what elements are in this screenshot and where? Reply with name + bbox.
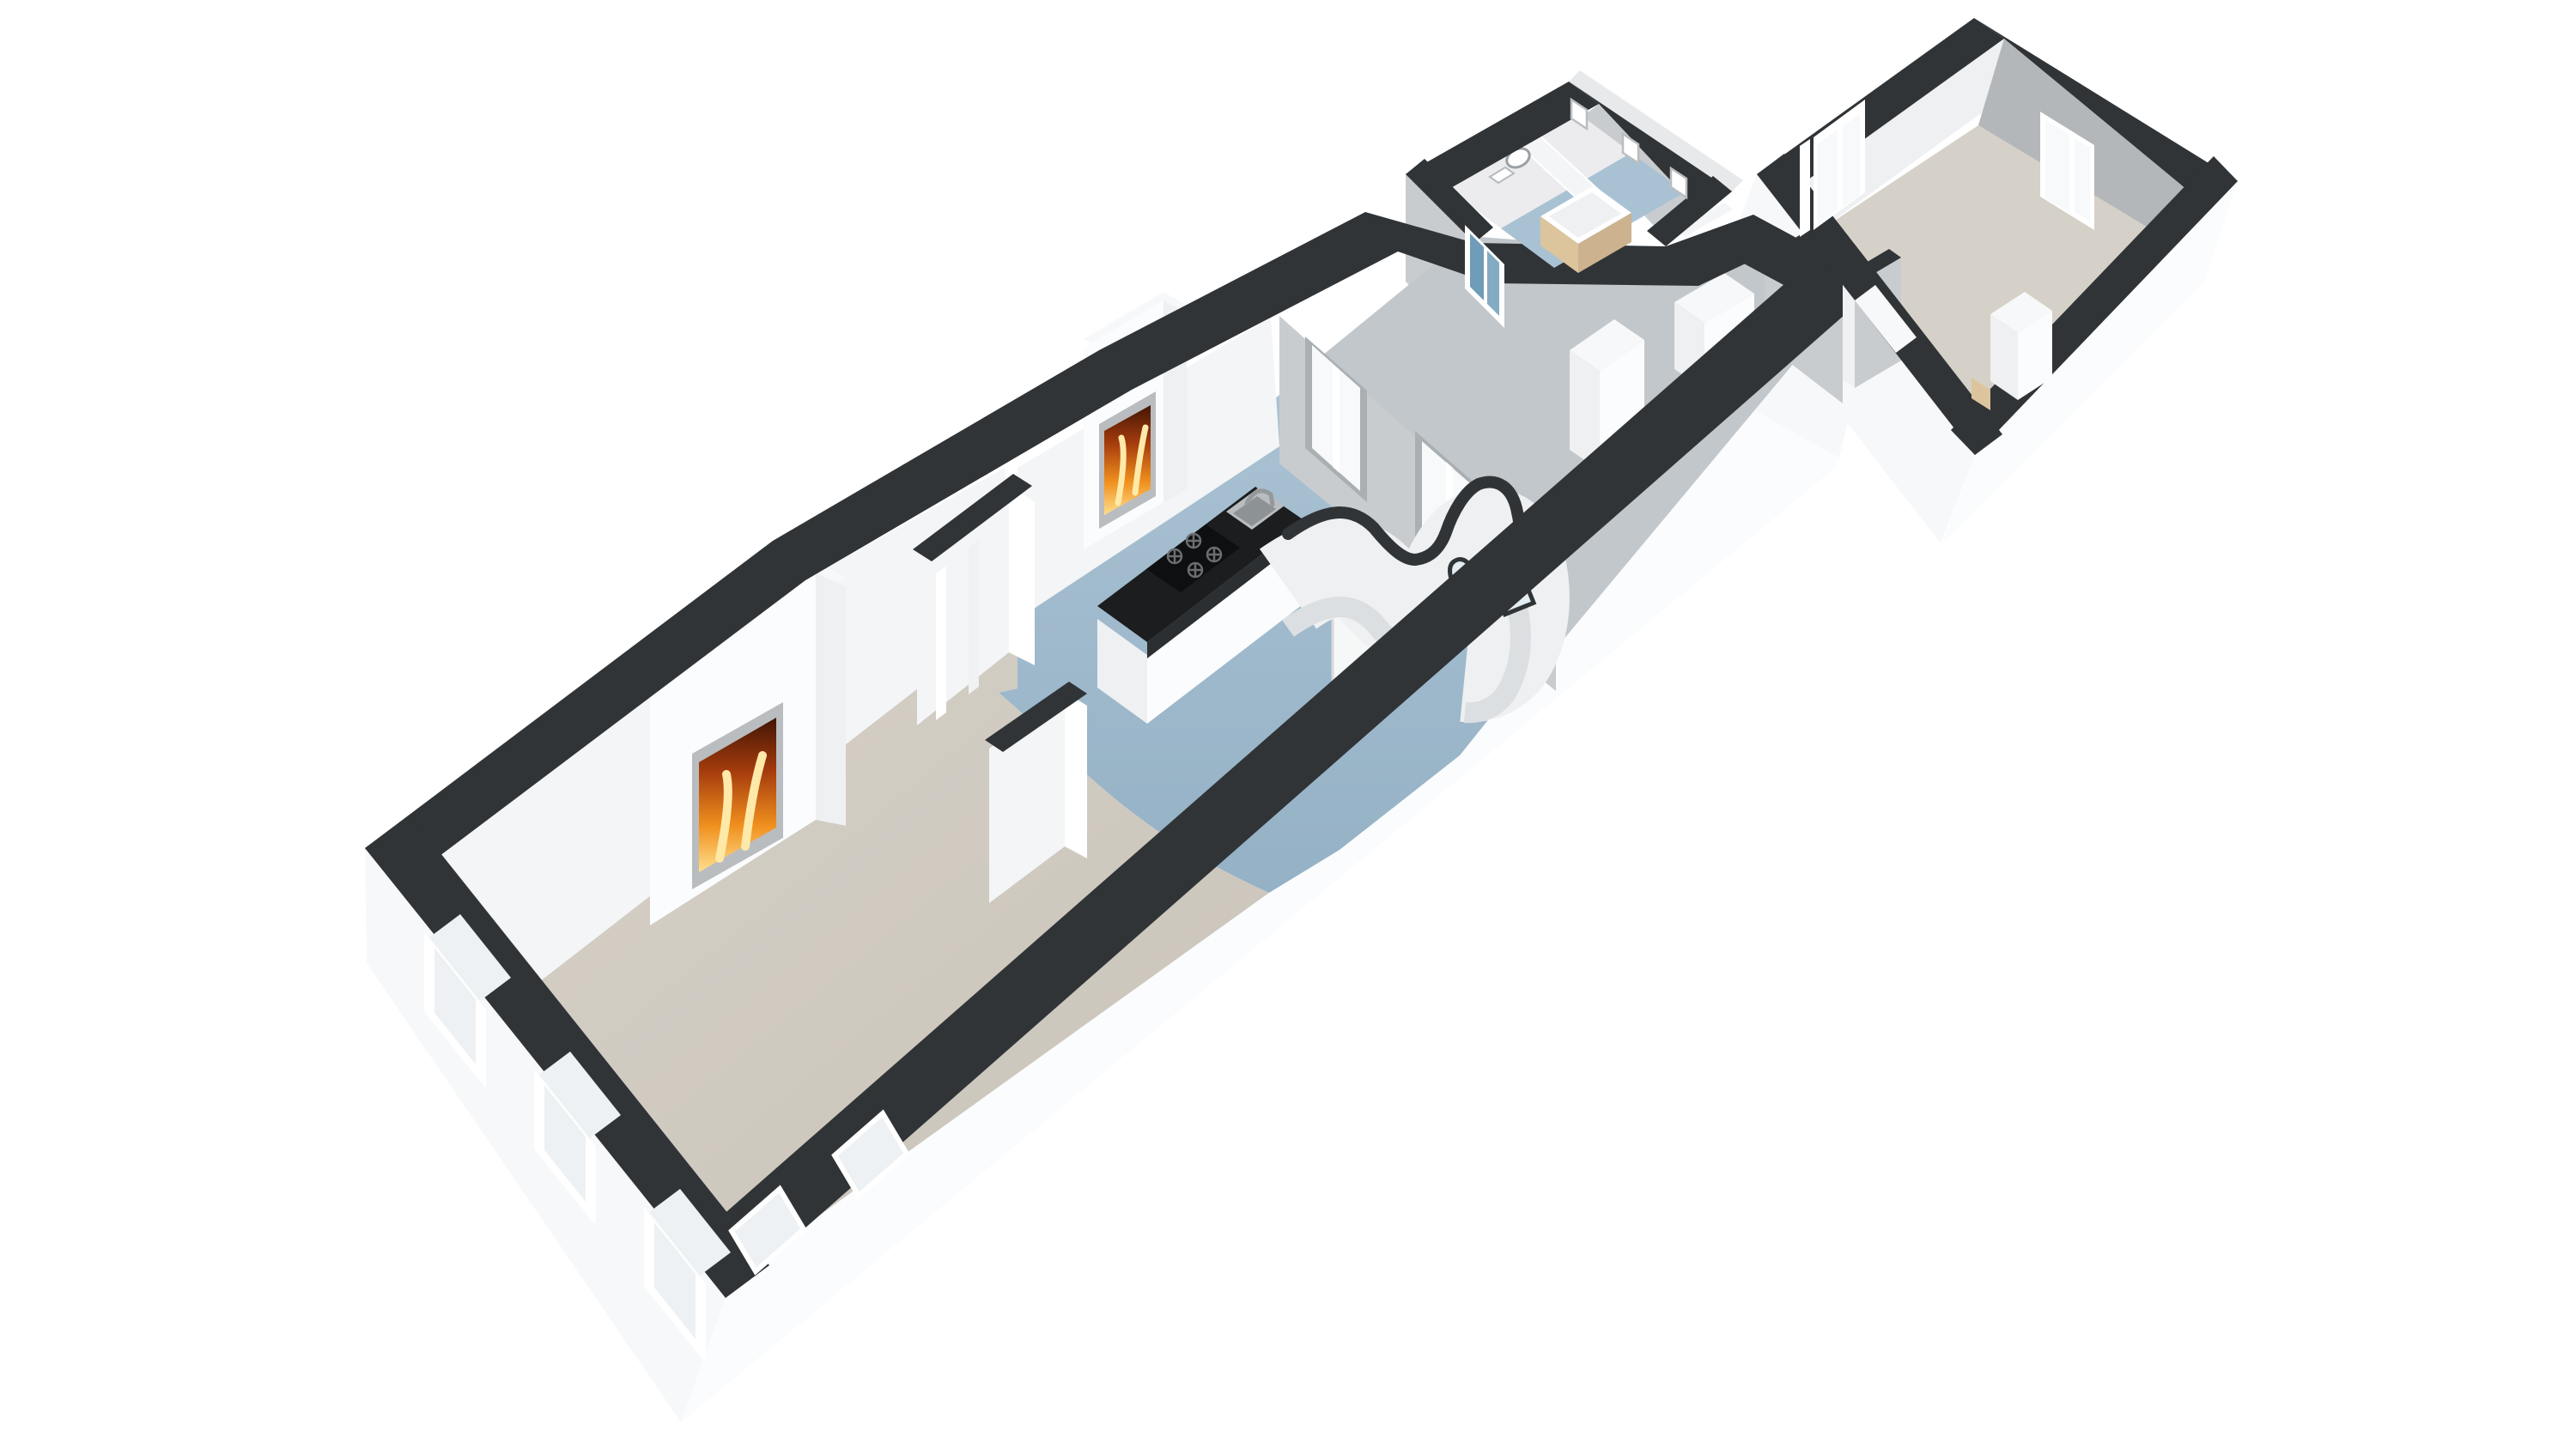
floorplan-render [0,0,2576,1449]
fireplace-side-face [816,573,846,826]
partition-panel-strip-2 [969,540,979,694]
partition-panel-strip-1 [936,566,946,720]
partition-south-edge [1065,692,1087,858]
partition-north-edge [1009,485,1035,665]
floorplan-canvas [0,0,2576,1449]
kitchen-window-mullion-1 [1333,364,1340,473]
